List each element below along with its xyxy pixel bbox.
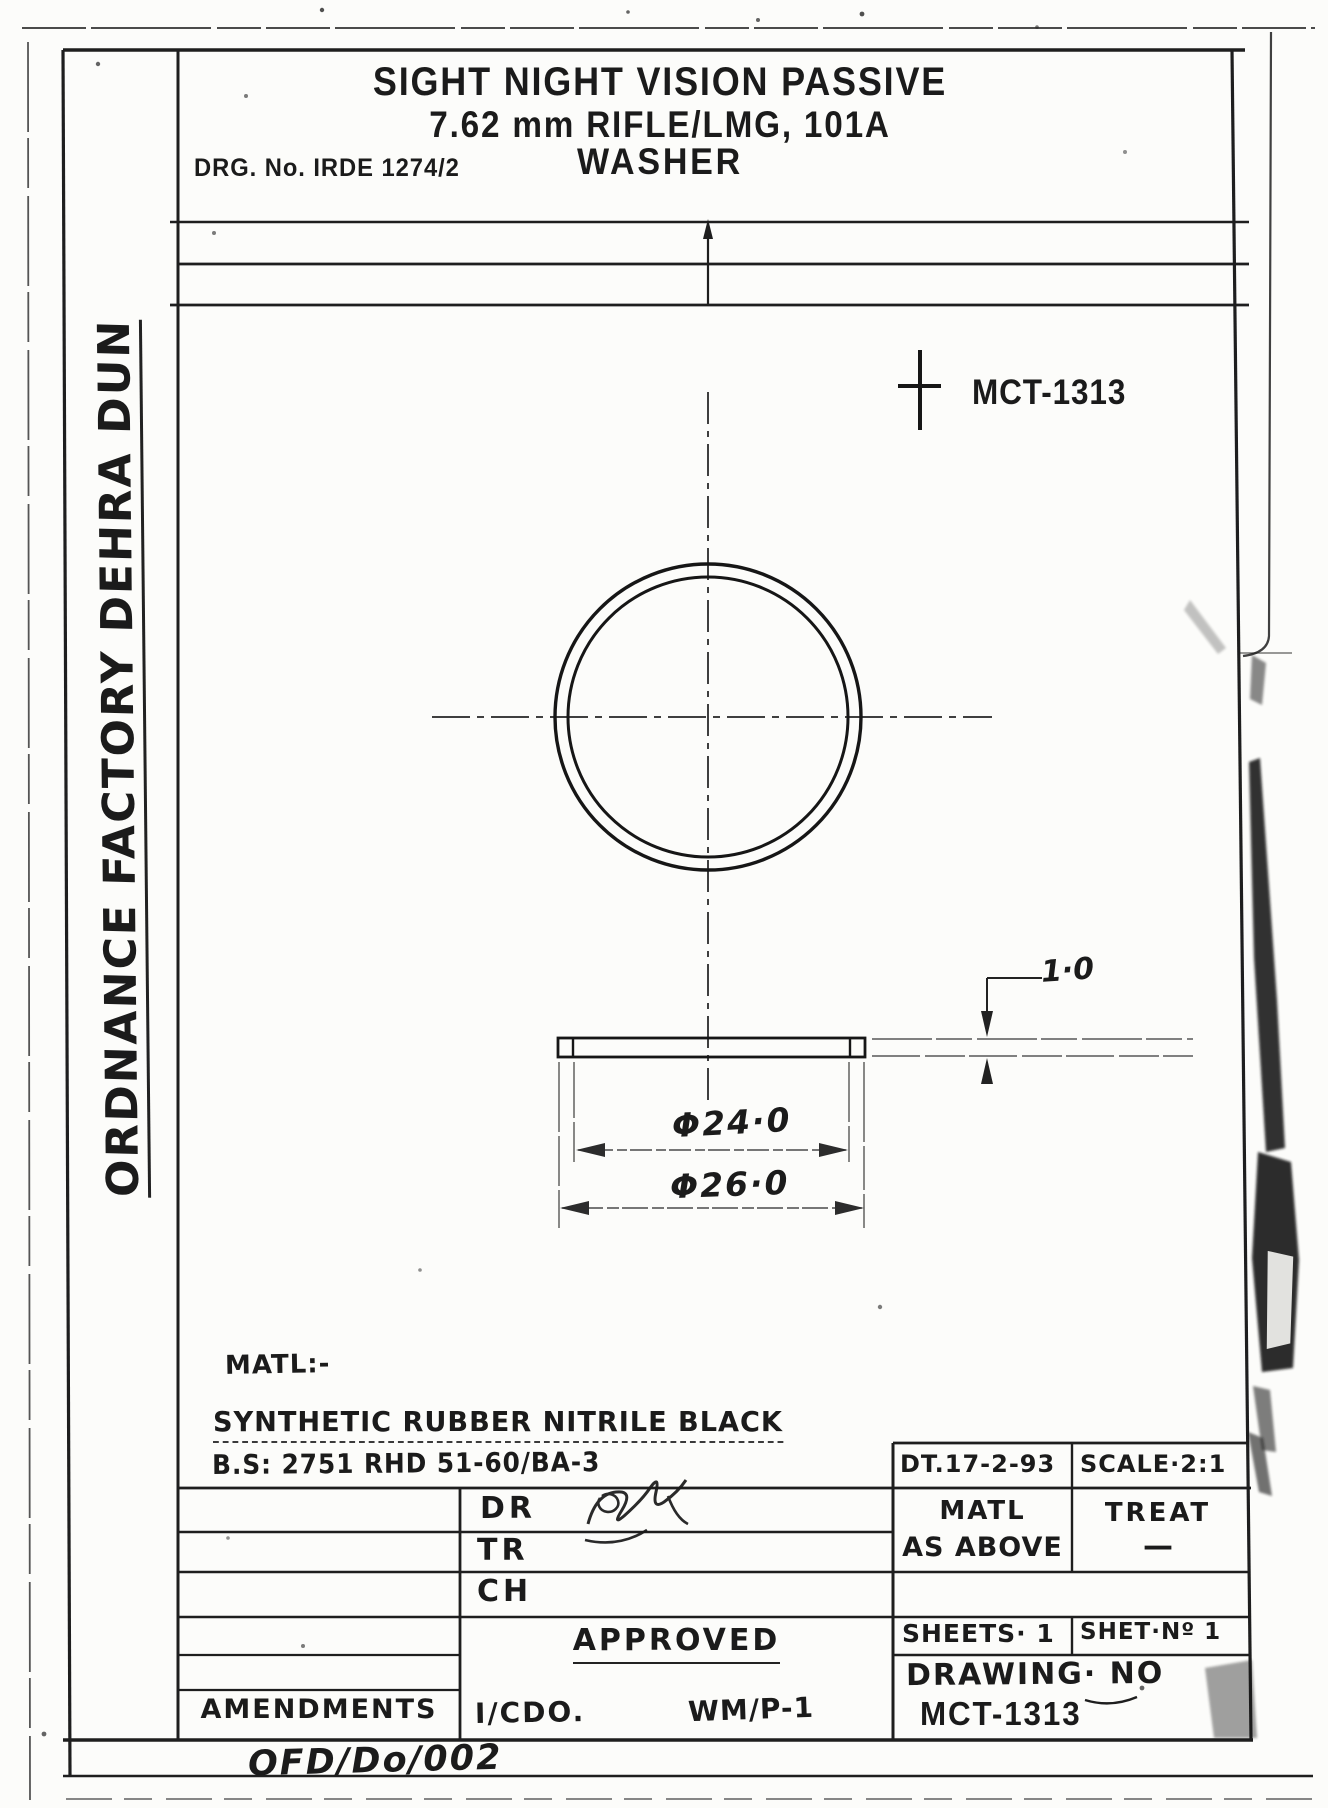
cell-sheets: SHEETS· 1 [902,1621,1055,1646]
dimension-thickness: 1·0 [1040,954,1095,988]
cell-icdo: I/CDO. [475,1698,586,1728]
material-spec-line2: B.S: 2751 RHD 51-60/BA-3 [212,1449,600,1479]
dimension-outer-diameter: Φ26·0 [669,1166,790,1203]
cell-treat-label: TREAT [1072,1500,1244,1526]
cell-approved-label: APPROVED [460,1626,893,1656]
cell-ch-label: CH [477,1577,532,1607]
form-number: OFD/Do/002 [248,1741,503,1783]
cell-date: DT.17-2-93 [900,1452,1055,1476]
factory-name-vertical: ORDNANCE FACTORY DEHRA DUN [93,318,151,1197]
cell-drawing-no-value: MCT-1313 [920,1697,1082,1730]
engineering-drawing-sheet: SIGHT NIGHT VISION PASSIVE 7.62 mm RIFLE… [0,0,1328,1808]
material-label: MATL:- [225,1351,331,1379]
thickness-dimension [872,978,1193,1084]
cell-wmp: WM/P-1 [688,1694,815,1726]
drg-number: DRG. No. IRDE 1274/2 [194,156,460,181]
title-line-2: 7.62 mm RIFLE/LMG, 101A [363,106,957,143]
approved-text: APPROVED [573,1623,781,1664]
cell-dr-label: DR [480,1494,536,1524]
centre-lines [432,392,992,1105]
cell-sheet-no: SHET·Nº 1 [1080,1621,1221,1644]
dimension-inner-diameter: Φ24·0 [671,1103,792,1142]
ref-number-label: MCT-1313 [972,375,1126,410]
washer-side-view [558,1038,865,1057]
cell-matl-value: AS ABOVE [893,1534,1072,1561]
cross-mark [898,350,941,430]
cell-matl-label: MATL [893,1498,1072,1524]
title-line-1: SIGHT NIGHT VISION PASSIVE [363,62,957,102]
cell-scale: SCALE·2:1 [1080,1452,1226,1476]
cell-tr-label: TR [477,1536,529,1566]
header-bands [170,219,1249,305]
cell-treat-value: — [1072,1532,1244,1562]
cell-amendments-label: AMENDMENTS [178,1696,460,1723]
cell-drawing-no-label: DRAWING· NO [906,1659,1165,1691]
material-spec-line1: SYNTHETIC RUBBER NITRILE BLACK [213,1408,783,1443]
